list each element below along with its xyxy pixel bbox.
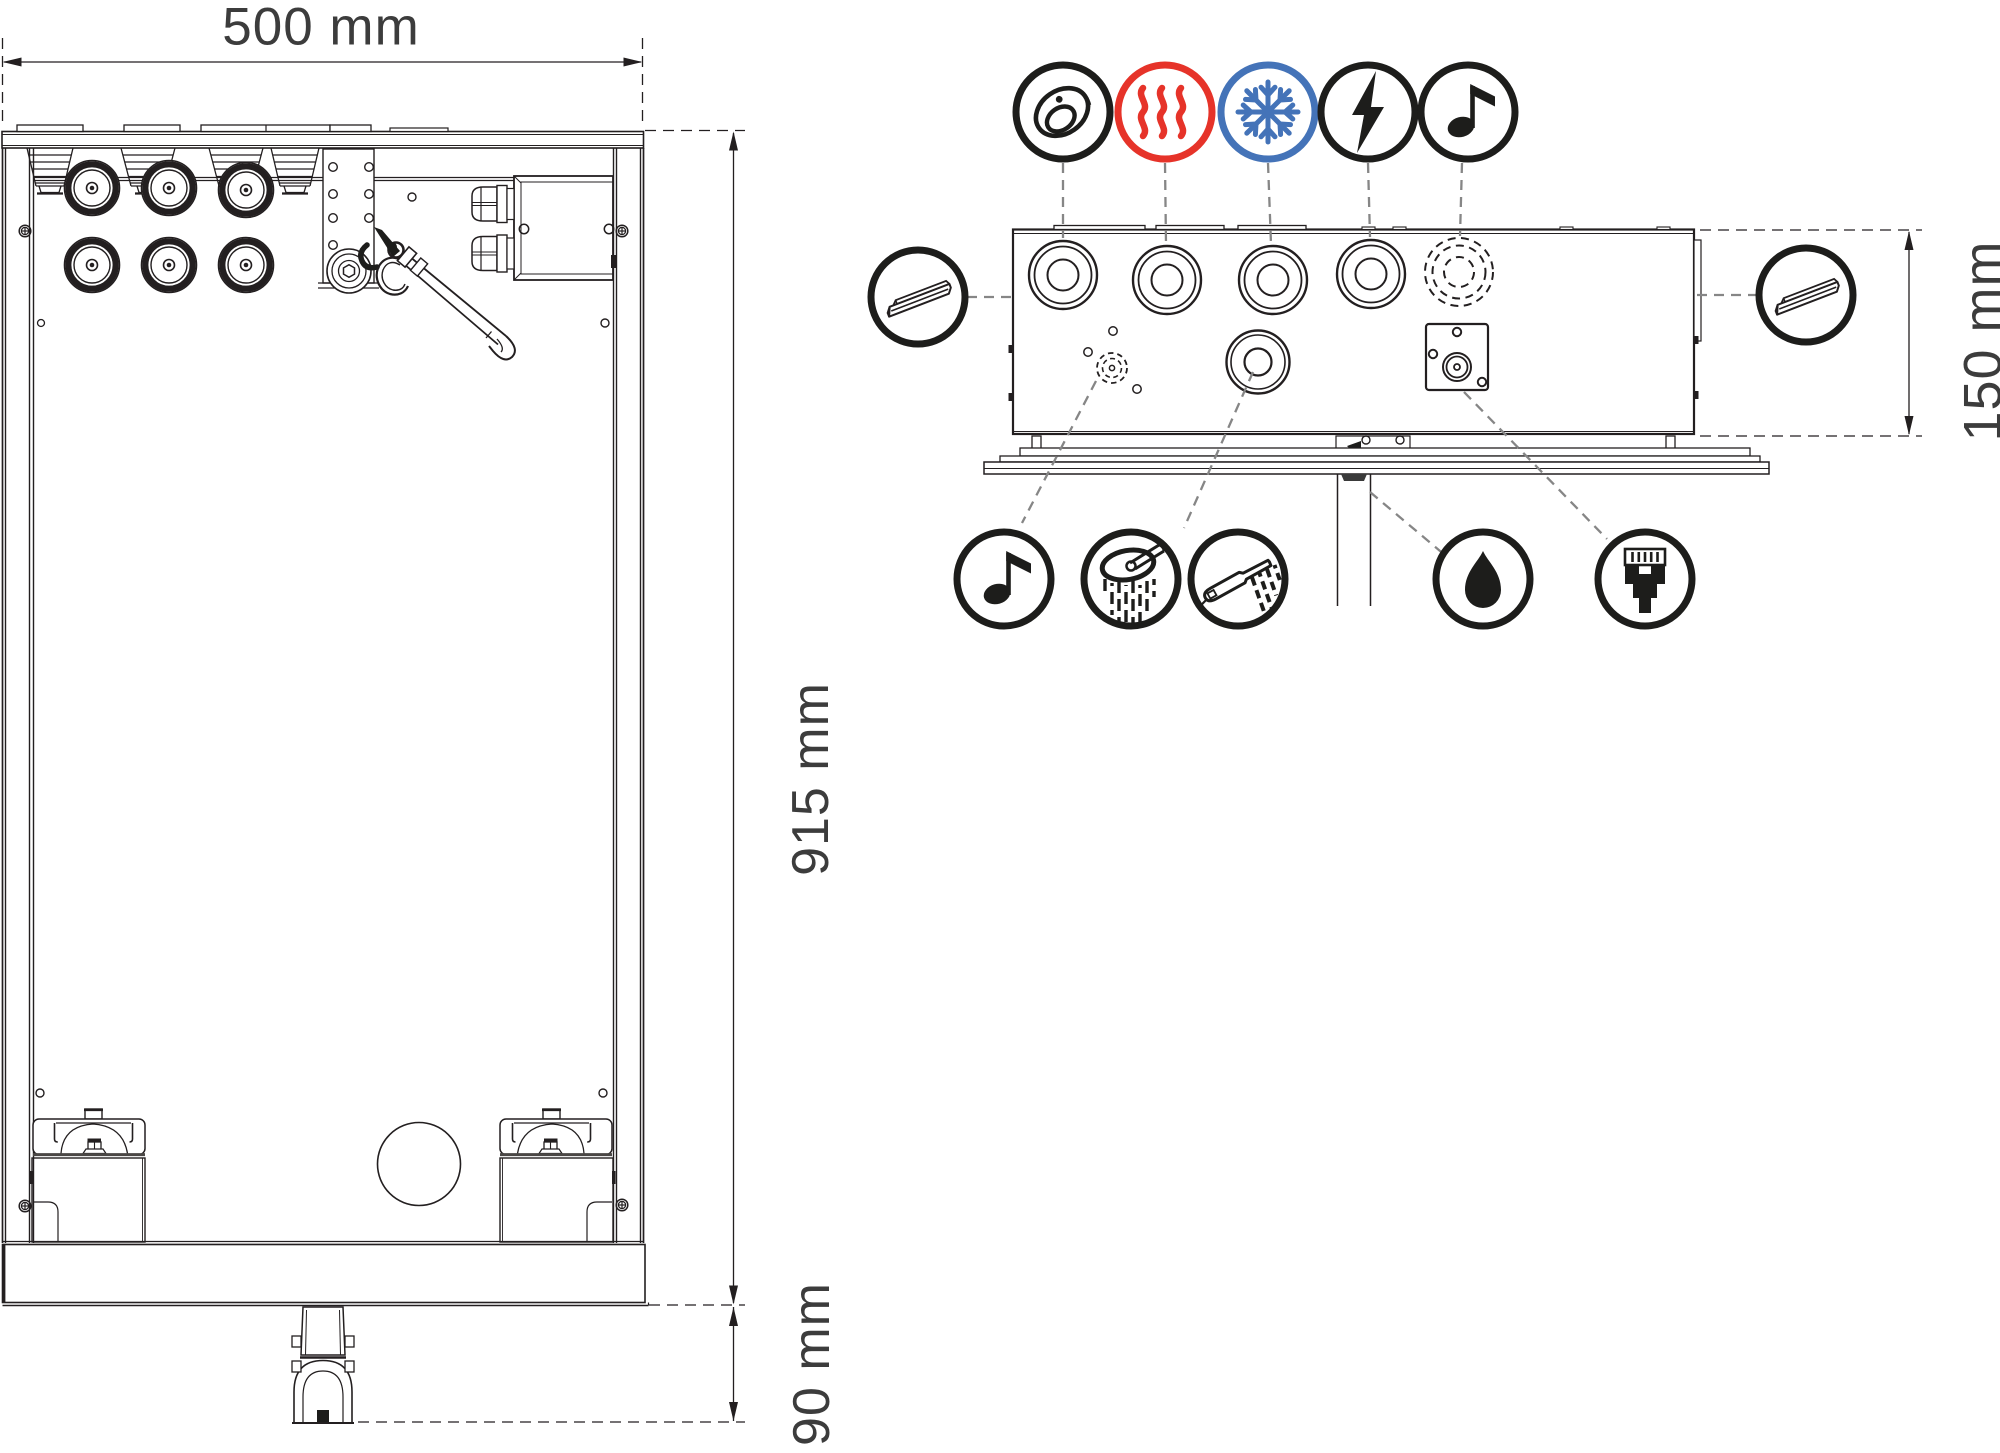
svg-text:90 mm: 90 mm bbox=[783, 1282, 841, 1446]
svg-text:500 mm: 500 mm bbox=[222, 0, 419, 57]
svg-text:915 mm: 915 mm bbox=[782, 682, 840, 876]
svg-text:150 mm: 150 mm bbox=[1953, 240, 2000, 441]
